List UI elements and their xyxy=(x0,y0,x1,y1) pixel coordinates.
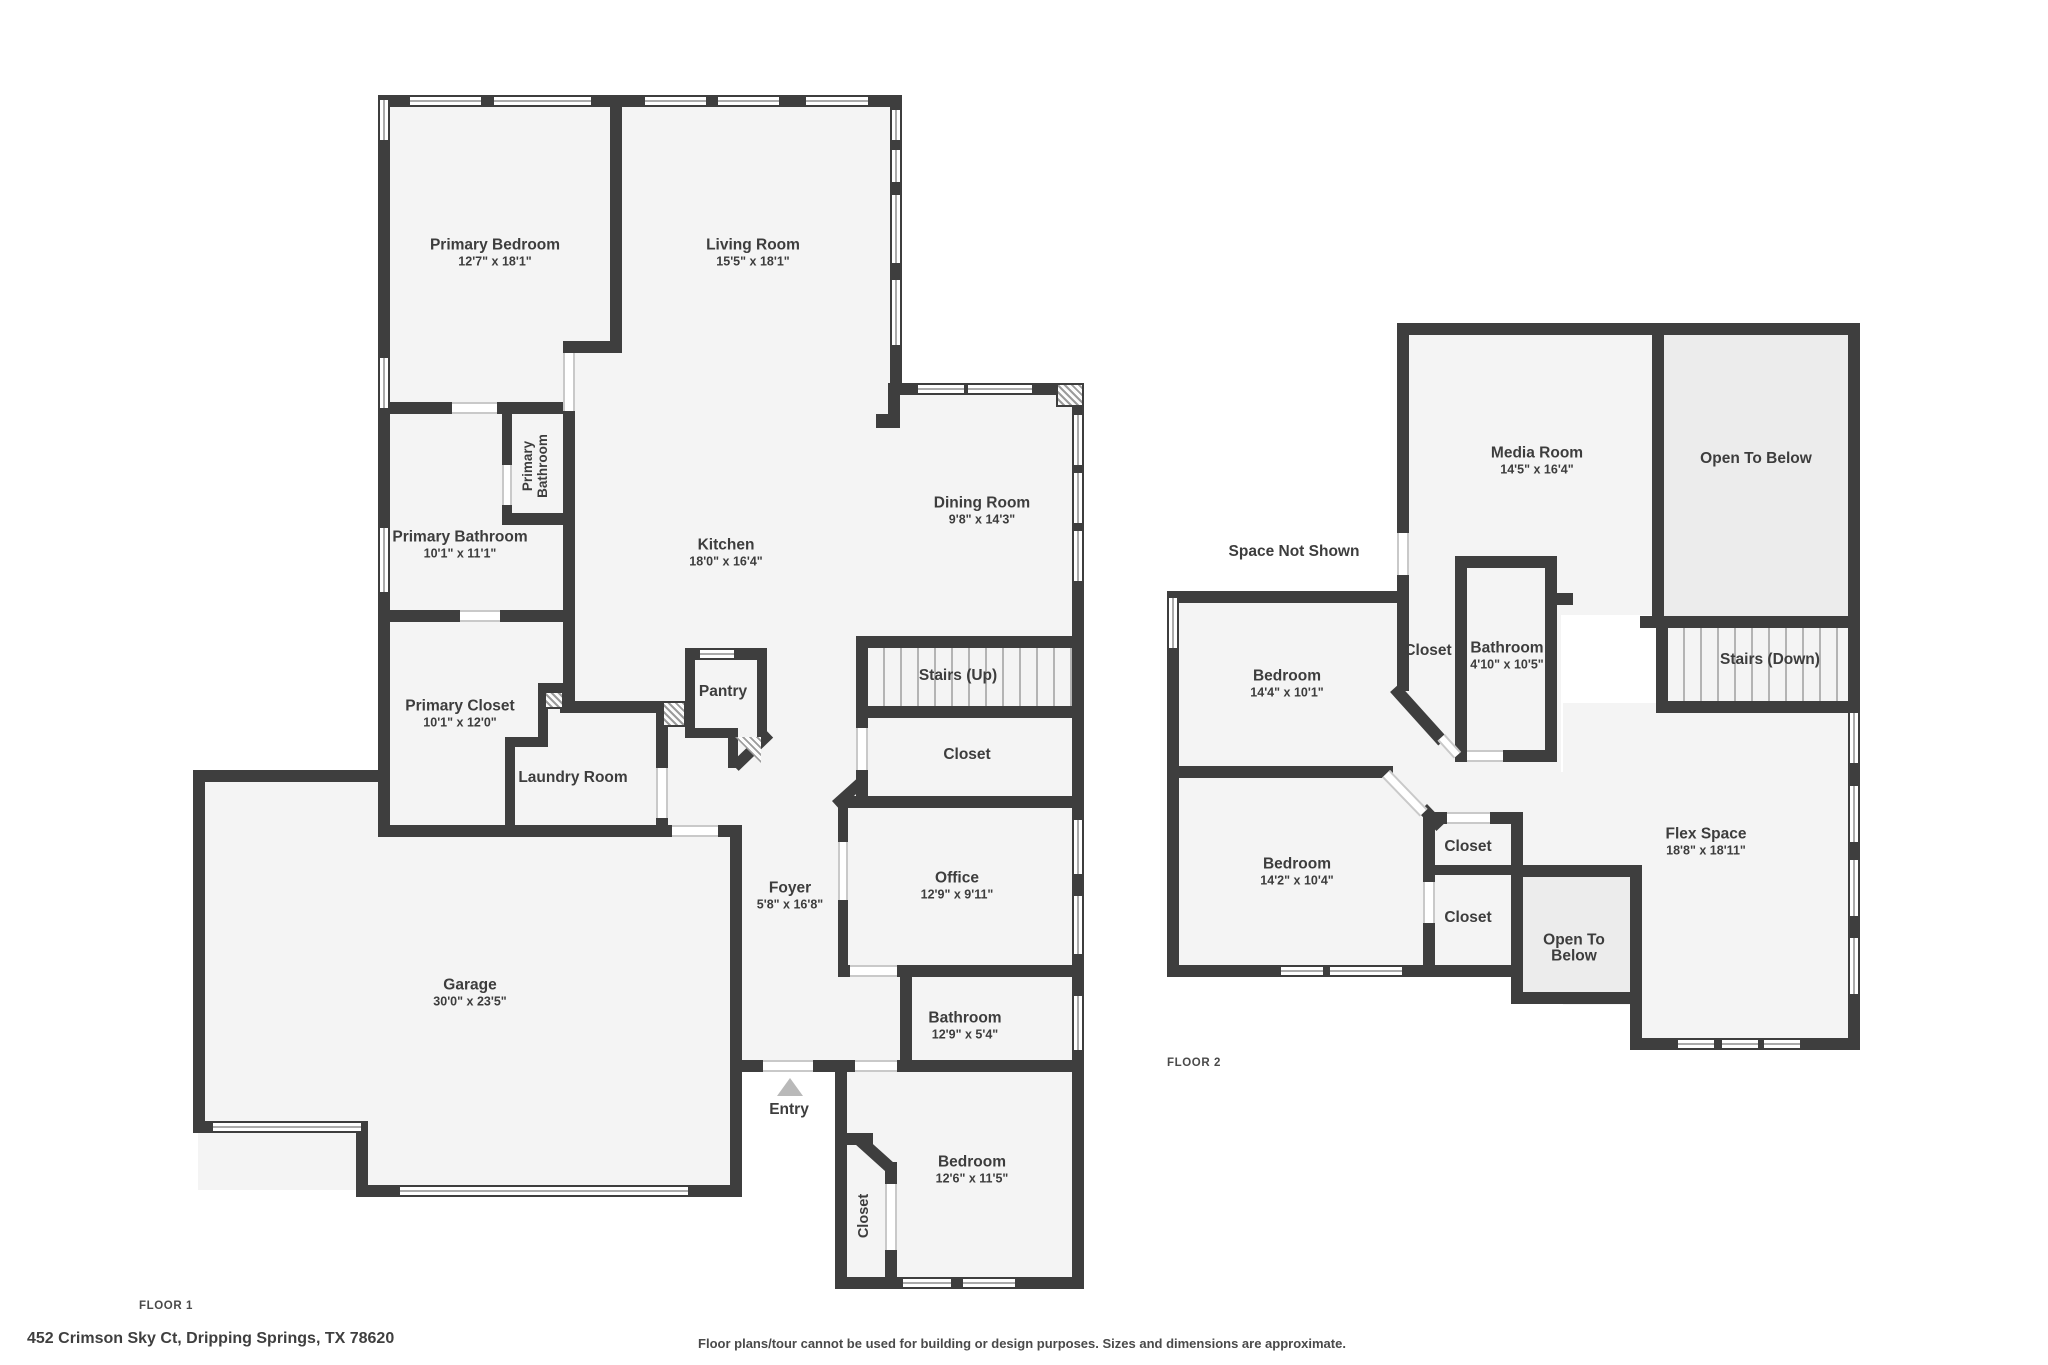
room-label-stairs-down: Stairs (Down) xyxy=(1720,652,1820,668)
wall xyxy=(1167,591,1409,603)
floor2-tag: FLOOR 2 xyxy=(1167,1057,1221,1069)
window xyxy=(1848,786,1860,842)
disclaimer-text: Floor plans/tour cannot be used for buil… xyxy=(698,1336,1346,1351)
wall xyxy=(1455,556,1557,568)
label-space-not-shown: Space Not Shown xyxy=(1229,544,1360,560)
room-label-open-to-below: Open To Below xyxy=(1700,451,1812,467)
room-label-closet-lower: Closet xyxy=(1444,910,1491,926)
window xyxy=(1330,965,1402,977)
door-opening xyxy=(1423,882,1435,923)
room-label-flex-space: Flex Space18'8" x 18'11" xyxy=(1666,826,1747,857)
wall xyxy=(1652,323,1664,628)
wall xyxy=(1503,750,1557,762)
room-label-media-room: Media Room14'5" x 16'4" xyxy=(1491,445,1583,476)
window xyxy=(1848,938,1860,994)
wall xyxy=(1167,766,1393,778)
floor-plan-page: { "footer": { "address": "452 Crimson Sk… xyxy=(0,0,2048,1365)
room-label-bedroom-a: Bedroom14'4" x 10'1" xyxy=(1250,668,1323,699)
room-label-hall-closet2: Closet xyxy=(1404,643,1451,659)
window xyxy=(1167,598,1179,648)
wall xyxy=(1455,556,1467,762)
window xyxy=(1848,860,1860,916)
floor2-plan: Media Room14'5" x 16'4" Open To Below Sp… xyxy=(0,0,2048,1365)
wall xyxy=(1630,865,1642,1050)
window xyxy=(1764,1038,1800,1050)
door-opening xyxy=(1447,812,1490,824)
window xyxy=(1848,713,1860,763)
wall xyxy=(1423,865,1523,875)
window xyxy=(1281,965,1323,977)
wall xyxy=(1640,616,1860,628)
open-to-below-fill xyxy=(1664,335,1848,618)
door-opening xyxy=(1467,750,1503,762)
door-opening xyxy=(1397,533,1409,575)
wall xyxy=(1167,591,1179,977)
wall xyxy=(1557,593,1573,605)
wall xyxy=(1545,556,1557,762)
window xyxy=(1678,1038,1714,1050)
wall xyxy=(1511,865,1642,877)
wall xyxy=(1656,616,1668,713)
wall xyxy=(1656,701,1860,713)
room-label-closet-upper: Closet xyxy=(1444,839,1491,855)
wall xyxy=(1511,992,1642,1004)
room-label-open-to-below-small: Open To Below xyxy=(1528,933,1620,966)
room-label-bathroom2: Bathroom4'10" x 10'5" xyxy=(1470,640,1543,671)
window xyxy=(1722,1038,1758,1050)
wall xyxy=(1403,323,1860,335)
room-fill xyxy=(1636,1003,1856,1043)
address-text: 452 Crimson Sky Ct, Dripping Springs, TX… xyxy=(27,1330,394,1348)
wall xyxy=(1397,323,1409,533)
room-label-bedroom-b: Bedroom14'2" x 10'4" xyxy=(1260,856,1333,887)
